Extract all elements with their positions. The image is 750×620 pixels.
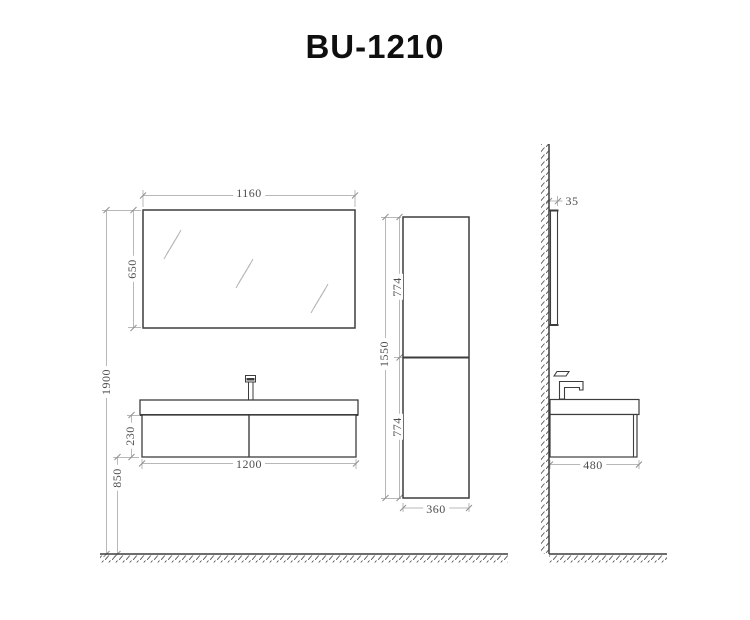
drawing-svg <box>0 0 750 620</box>
dim-column-lower: 774 <box>391 414 403 440</box>
dim-column-height: 1550 <box>378 338 390 370</box>
vanity-cabinet-side <box>550 415 637 458</box>
floor-hatch-front <box>100 556 508 563</box>
dim-total-height: 1900 <box>100 366 112 398</box>
tall-cabinet-view <box>403 217 469 498</box>
floor-hatch-side <box>549 556 667 563</box>
dim-cabinet-height: 230 <box>124 423 136 449</box>
mirror-side-profile <box>550 211 559 326</box>
faucet-front <box>246 376 256 401</box>
side-view <box>541 144 667 563</box>
wall-hatch <box>541 144 549 554</box>
dim-column-width: 360 <box>423 503 449 515</box>
countertop-side <box>550 400 639 415</box>
mirror-front <box>143 210 355 328</box>
dim-column-upper: 774 <box>391 274 403 300</box>
dim-floor-clearance: 850 <box>111 465 123 491</box>
dim-mirror-width: 1160 <box>233 187 265 199</box>
technical-drawing-page: BU-1210 <box>0 0 750 620</box>
dim-cabinet-depth: 480 <box>580 459 606 471</box>
faucet-side-profile <box>554 372 583 400</box>
dim-mirror-depth: 35 <box>563 195 582 207</box>
dim-mirror-height: 650 <box>126 256 138 282</box>
dim-cabinet-width: 1200 <box>233 458 265 470</box>
countertop-front <box>140 400 358 415</box>
